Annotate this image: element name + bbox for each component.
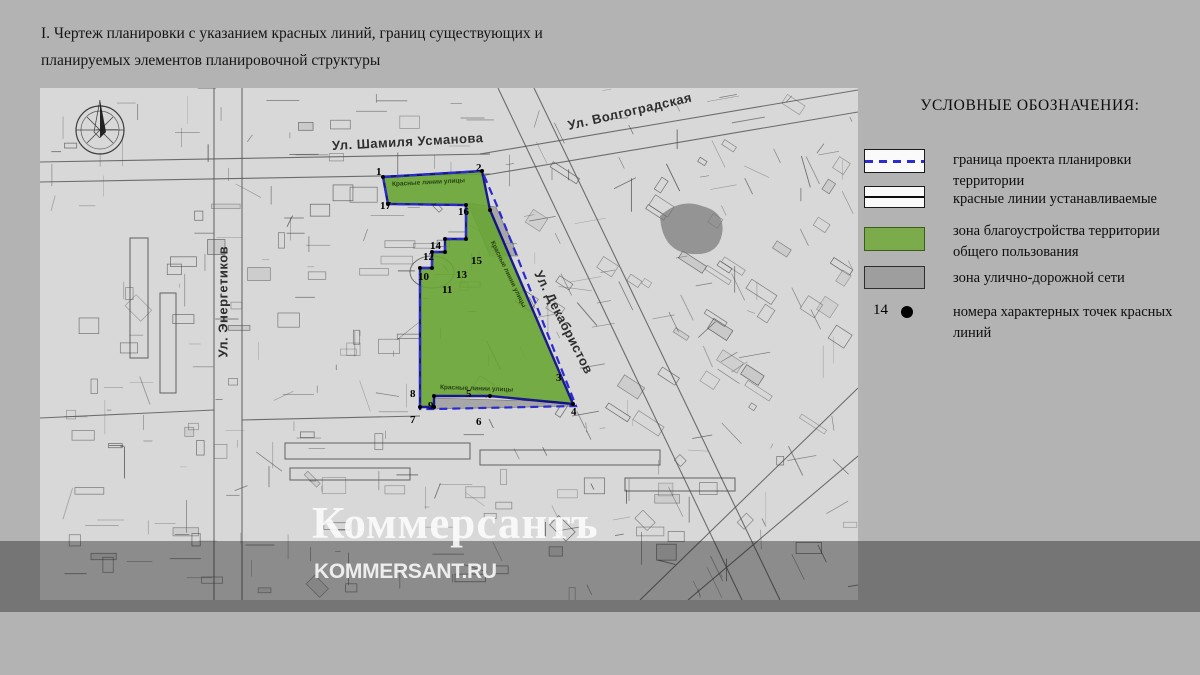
project-boundary-swatch (864, 149, 925, 173)
legend-item-point-numbers: номера характерных точек красных линий (953, 302, 1177, 344)
red-lines-swatch (864, 186, 925, 208)
map-point-number: 3 (556, 372, 562, 384)
map-point-number: 11 (442, 284, 452, 296)
map-point-number: 1 (376, 166, 382, 178)
figure-title-line2: планируемых элементов планировочной стру… (41, 47, 681, 74)
legend-item-red-lines: красные линии устанавливаемые (953, 189, 1177, 210)
map-point-number: 7 (410, 414, 416, 426)
legend-item-project-boundary: граница проекта планировки территории (953, 150, 1177, 192)
map-point-number: 16 (458, 206, 469, 218)
red-line-edge-label: Красные линии улицы (440, 384, 513, 394)
map-point-number: 8 (410, 388, 416, 400)
red-line-edge-label: Красные линии улицы (489, 240, 527, 309)
map-point-number: 4 (571, 406, 577, 418)
street-label: Ул. Декабристов (531, 268, 596, 376)
kommersant-site-url: KOMMERSANT.RU (314, 560, 497, 584)
map-point-number: 14 (430, 240, 441, 252)
point-dot-icon (901, 306, 913, 318)
legend-item-landscaping-zone: зона благоустройства территории общего п… (953, 221, 1177, 263)
landscaping-zone-swatch (864, 227, 925, 251)
map-point-number: 5 (466, 388, 472, 400)
map-point-number: 13 (456, 269, 467, 281)
legend-title: УСЛОВНЫЕ ОБОЗНАЧЕНИЯ: (880, 97, 1180, 115)
map-point-number: 2 (476, 162, 482, 174)
street-label: Ул. Энергетиков (216, 246, 231, 358)
street-network-zone-swatch (864, 266, 925, 289)
map-point-number: 15 (471, 255, 482, 267)
figure-title-line1: I. Чертеж планировки с указанием красных… (41, 20, 681, 47)
kommersant-logo: Коммерсантъ (312, 497, 599, 549)
figure-title: I. Чертеж планировки с указанием красных… (41, 20, 681, 74)
legend-item-street-network-zone: зона улично-дорожной сети (953, 268, 1177, 289)
blue-dashed-line-icon (865, 160, 924, 163)
red-line-edge-label: Красные линии улицы (392, 177, 465, 188)
map-point-number: 9 (428, 400, 434, 412)
red-line-icon (865, 196, 924, 199)
street-label: Ул. Шамиля Усманова (332, 130, 484, 153)
map-point-number: 17 (380, 200, 391, 212)
watermark-band (0, 541, 1200, 612)
map-point-number: 6 (476, 416, 482, 428)
map-point-number: 10 (418, 271, 429, 283)
map-point-number: 12 (423, 251, 434, 263)
street-label: Ул. Волгоградская (566, 90, 693, 133)
legend-point-number: 14 (873, 302, 888, 319)
